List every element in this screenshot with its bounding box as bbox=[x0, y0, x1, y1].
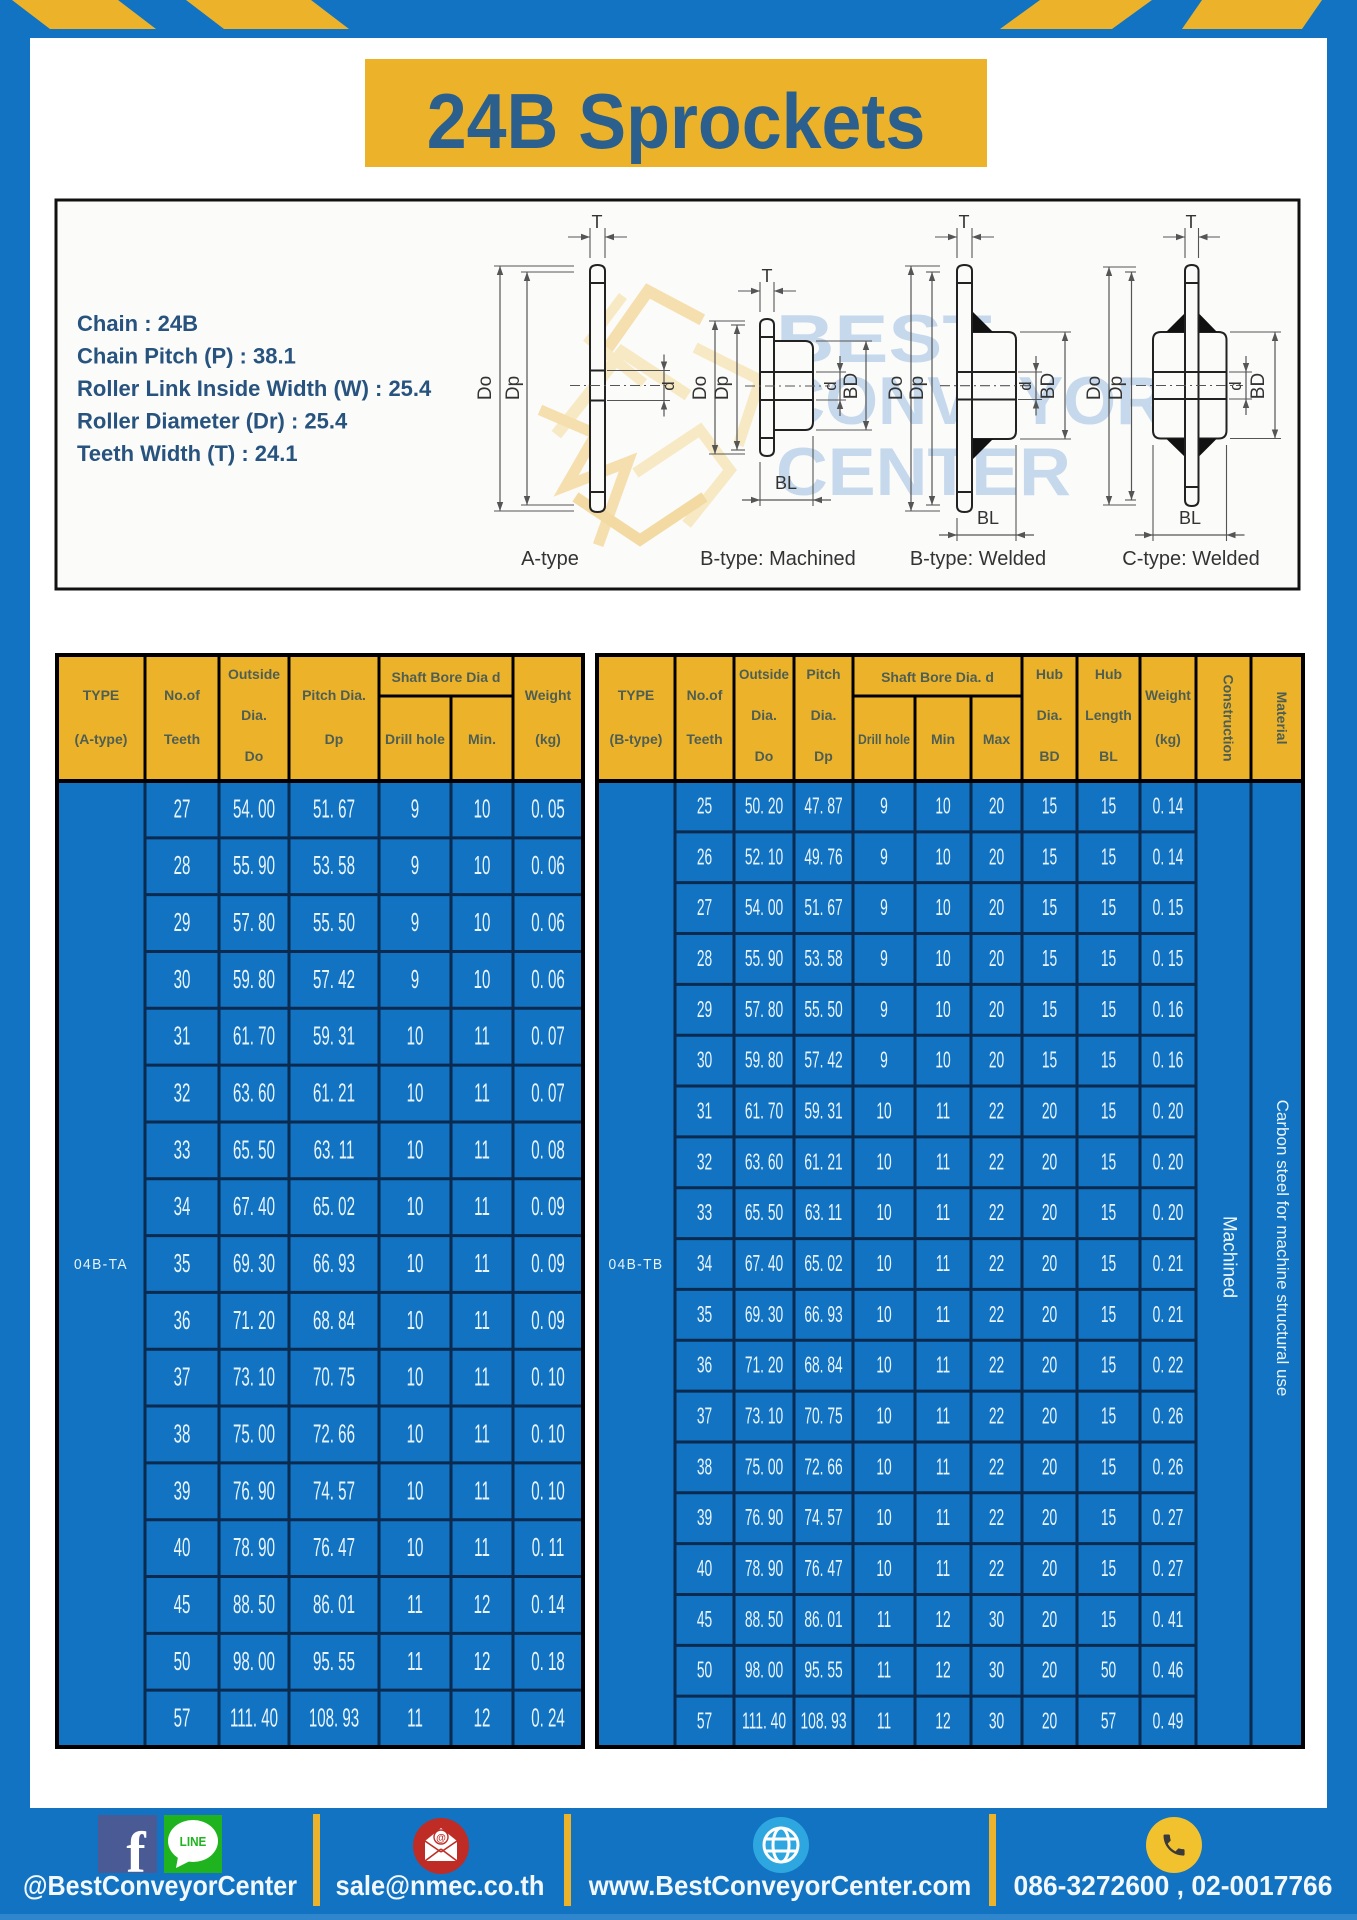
svg-text:20: 20 bbox=[989, 845, 1004, 870]
svg-text:50: 50 bbox=[174, 1647, 191, 1676]
svg-text:22: 22 bbox=[989, 1404, 1004, 1429]
svg-text:0. 26: 0. 26 bbox=[1153, 1404, 1184, 1429]
svg-text:0. 14: 0. 14 bbox=[531, 1590, 565, 1619]
svg-text:57. 80: 57. 80 bbox=[233, 908, 275, 937]
svg-text:Do: Do bbox=[886, 376, 907, 400]
svg-text:27: 27 bbox=[697, 896, 712, 921]
svg-text:12: 12 bbox=[935, 1709, 950, 1734]
svg-text:47. 87: 47. 87 bbox=[804, 794, 842, 819]
svg-text:31: 31 bbox=[174, 1021, 191, 1050]
svg-text:15: 15 bbox=[1042, 896, 1057, 921]
svg-text:59. 80: 59. 80 bbox=[745, 1048, 783, 1073]
svg-text:69. 30: 69. 30 bbox=[745, 1302, 783, 1327]
svg-text:69. 30: 69. 30 bbox=[233, 1249, 275, 1278]
svg-text:Chain : 24B: Chain : 24B bbox=[77, 311, 198, 336]
svg-text:20: 20 bbox=[1042, 1353, 1057, 1378]
svg-text:15: 15 bbox=[1101, 1455, 1116, 1480]
svg-text:15: 15 bbox=[1101, 1252, 1116, 1277]
svg-text:T: T bbox=[592, 212, 603, 232]
svg-text:9: 9 bbox=[880, 896, 888, 921]
svg-text:72. 66: 72. 66 bbox=[313, 1419, 355, 1448]
svg-text:10: 10 bbox=[407, 1249, 424, 1278]
svg-text:Pitch: Pitch bbox=[806, 666, 840, 682]
svg-text:0. 06: 0. 06 bbox=[531, 965, 565, 994]
svg-text:15: 15 bbox=[1101, 845, 1116, 870]
svg-text:10: 10 bbox=[876, 1099, 891, 1124]
svg-text:10: 10 bbox=[407, 1419, 424, 1448]
svg-text:22: 22 bbox=[989, 1201, 1004, 1226]
svg-text:57. 42: 57. 42 bbox=[313, 965, 355, 994]
svg-text:20: 20 bbox=[989, 794, 1004, 819]
svg-text:9: 9 bbox=[411, 908, 419, 937]
svg-text:d: d bbox=[821, 381, 840, 390]
svg-text:73. 10: 73. 10 bbox=[233, 1362, 275, 1391]
svg-text:Dia.: Dia. bbox=[1037, 707, 1063, 723]
svg-text:11: 11 bbox=[474, 1533, 490, 1562]
svg-text:36: 36 bbox=[697, 1353, 712, 1378]
svg-text:30: 30 bbox=[989, 1607, 1004, 1632]
svg-text:9: 9 bbox=[880, 947, 888, 972]
svg-text:10: 10 bbox=[407, 1078, 424, 1107]
svg-text:Teeth Width (T) : 24.1: Teeth Width (T) : 24.1 bbox=[77, 441, 298, 466]
svg-text:Teeth: Teeth bbox=[164, 731, 200, 747]
svg-text:Dp: Dp bbox=[503, 376, 524, 400]
svg-text:15: 15 bbox=[1042, 947, 1057, 972]
svg-text:111. 40: 111. 40 bbox=[742, 1709, 786, 1734]
svg-text:Machined: Machined bbox=[1219, 1216, 1240, 1298]
svg-text:9: 9 bbox=[880, 997, 888, 1022]
svg-text:11: 11 bbox=[936, 1302, 950, 1327]
svg-text:35: 35 bbox=[174, 1249, 191, 1278]
svg-text:30: 30 bbox=[989, 1658, 1004, 1683]
svg-text:39: 39 bbox=[174, 1476, 191, 1505]
svg-text:22: 22 bbox=[989, 1353, 1004, 1378]
svg-text:74. 57: 74. 57 bbox=[804, 1506, 842, 1531]
svg-text:61. 21: 61. 21 bbox=[804, 1150, 842, 1175]
svg-text:108. 93: 108. 93 bbox=[800, 1709, 846, 1734]
svg-text:Construction: Construction bbox=[1221, 674, 1237, 761]
svg-text:BL: BL bbox=[775, 473, 797, 493]
svg-text:20: 20 bbox=[989, 1048, 1004, 1073]
svg-text:0. 21: 0. 21 bbox=[1153, 1252, 1184, 1277]
svg-text:57: 57 bbox=[1101, 1709, 1116, 1734]
svg-text:www.BestConveyorCenter.com: www.BestConveyorCenter.com bbox=[588, 1870, 971, 1901]
svg-text:61. 21: 61. 21 bbox=[313, 1078, 355, 1107]
svg-text:24B Sprockets: 24B Sprockets bbox=[427, 77, 926, 164]
svg-text:04B-TA: 04B-TA bbox=[74, 1257, 128, 1274]
svg-text:0. 10: 0. 10 bbox=[531, 1419, 565, 1448]
svg-text:45: 45 bbox=[174, 1590, 191, 1619]
svg-text:50: 50 bbox=[1101, 1658, 1116, 1683]
svg-text:Do: Do bbox=[245, 748, 264, 764]
svg-text:33: 33 bbox=[697, 1201, 712, 1226]
svg-text:22: 22 bbox=[989, 1252, 1004, 1277]
svg-text:11: 11 bbox=[936, 1404, 950, 1429]
svg-text:55. 90: 55. 90 bbox=[233, 851, 275, 880]
svg-text:Do: Do bbox=[690, 376, 711, 400]
svg-text:98. 00: 98. 00 bbox=[233, 1647, 275, 1676]
svg-text:BL: BL bbox=[977, 508, 999, 528]
svg-text:0. 15: 0. 15 bbox=[1153, 896, 1184, 921]
svg-text:Outside: Outside bbox=[228, 666, 280, 682]
svg-text:65. 02: 65. 02 bbox=[804, 1252, 842, 1277]
svg-text:30: 30 bbox=[174, 965, 191, 994]
svg-text:86. 01: 86. 01 bbox=[313, 1590, 355, 1619]
svg-text:0. 20: 0. 20 bbox=[1153, 1099, 1184, 1124]
svg-text:15: 15 bbox=[1101, 1099, 1116, 1124]
svg-text:55. 90: 55. 90 bbox=[745, 947, 783, 972]
svg-text:Drill hole: Drill hole bbox=[858, 731, 910, 747]
svg-text:Shaft Bore Dia. d: Shaft Bore Dia. d bbox=[881, 669, 994, 685]
svg-text:15: 15 bbox=[1042, 1048, 1057, 1073]
svg-text:26: 26 bbox=[697, 845, 712, 870]
svg-text:68. 84: 68. 84 bbox=[804, 1353, 842, 1378]
svg-text:28: 28 bbox=[174, 851, 191, 880]
svg-text:15: 15 bbox=[1101, 1201, 1116, 1226]
svg-text:78. 90: 78. 90 bbox=[233, 1533, 275, 1562]
svg-text:35: 35 bbox=[697, 1302, 712, 1327]
svg-text:11: 11 bbox=[474, 1362, 490, 1391]
svg-text:0. 49: 0. 49 bbox=[1153, 1709, 1184, 1734]
svg-text:11: 11 bbox=[474, 1306, 490, 1335]
svg-text:BL: BL bbox=[1099, 748, 1118, 764]
svg-text:40: 40 bbox=[697, 1557, 712, 1582]
svg-text:65. 50: 65. 50 bbox=[233, 1135, 275, 1164]
svg-text:0. 24: 0. 24 bbox=[531, 1703, 565, 1732]
svg-text:34: 34 bbox=[697, 1252, 712, 1277]
svg-text:Carbon steel for machine struc: Carbon steel for machine structural use bbox=[1273, 1100, 1292, 1397]
svg-text:55. 50: 55. 50 bbox=[313, 908, 355, 937]
svg-text:0. 14: 0. 14 bbox=[1153, 794, 1184, 819]
svg-text:Chain Pitch (P) : 38.1: Chain Pitch (P) : 38.1 bbox=[77, 344, 296, 369]
svg-text:10: 10 bbox=[935, 997, 950, 1022]
svg-text:Min.: Min. bbox=[468, 731, 496, 747]
svg-text:10: 10 bbox=[876, 1557, 891, 1582]
svg-text:22: 22 bbox=[989, 1099, 1004, 1124]
svg-text:67. 40: 67. 40 bbox=[233, 1192, 275, 1221]
svg-text:15: 15 bbox=[1042, 997, 1057, 1022]
svg-text:20: 20 bbox=[1042, 1302, 1057, 1327]
svg-text:d: d bbox=[1016, 381, 1035, 390]
svg-text:37: 37 bbox=[697, 1404, 712, 1429]
svg-text:0. 09: 0. 09 bbox=[531, 1249, 565, 1278]
svg-text:Hub: Hub bbox=[1095, 666, 1122, 682]
svg-text:11: 11 bbox=[936, 1201, 950, 1226]
svg-text:49. 76: 49. 76 bbox=[804, 845, 842, 870]
svg-text:Dp: Dp bbox=[1106, 376, 1127, 400]
svg-text:0. 20: 0. 20 bbox=[1153, 1150, 1184, 1175]
svg-text:10: 10 bbox=[474, 851, 491, 880]
svg-text:98. 00: 98. 00 bbox=[745, 1658, 783, 1683]
svg-text:15: 15 bbox=[1101, 1557, 1116, 1582]
svg-text:BD: BD bbox=[1248, 373, 1269, 399]
svg-text:75. 00: 75. 00 bbox=[233, 1419, 275, 1448]
svg-text:15: 15 bbox=[1101, 1048, 1116, 1073]
svg-text:11: 11 bbox=[936, 1150, 950, 1175]
svg-text:30: 30 bbox=[989, 1709, 1004, 1734]
svg-text:22: 22 bbox=[989, 1302, 1004, 1327]
svg-text:25: 25 bbox=[697, 794, 712, 819]
svg-text:63. 60: 63. 60 bbox=[233, 1078, 275, 1107]
svg-text:57: 57 bbox=[174, 1703, 191, 1732]
svg-text:Dp: Dp bbox=[907, 376, 928, 400]
svg-text:20: 20 bbox=[1042, 1658, 1057, 1683]
svg-text:T: T bbox=[762, 266, 773, 286]
svg-text:61. 70: 61. 70 bbox=[233, 1021, 275, 1050]
svg-text:76. 90: 76. 90 bbox=[745, 1506, 783, 1531]
svg-text:70. 75: 70. 75 bbox=[804, 1404, 842, 1429]
svg-text:@BestConveyorCenter: @BestConveyorCenter bbox=[23, 1870, 297, 1902]
svg-text:No.of: No.of bbox=[687, 687, 723, 703]
svg-text:71. 20: 71. 20 bbox=[745, 1353, 783, 1378]
svg-text:0. 16: 0. 16 bbox=[1153, 1048, 1184, 1073]
svg-text:10: 10 bbox=[407, 1362, 424, 1391]
svg-text:20: 20 bbox=[1042, 1557, 1057, 1582]
svg-text:33: 33 bbox=[174, 1135, 191, 1164]
svg-text:54. 00: 54. 00 bbox=[233, 794, 275, 823]
svg-text:0. 26: 0. 26 bbox=[1153, 1455, 1184, 1480]
svg-text:Outside: Outside bbox=[739, 667, 789, 682]
svg-text:88. 50: 88. 50 bbox=[233, 1590, 275, 1619]
svg-text:20: 20 bbox=[1042, 1506, 1057, 1531]
svg-text:67. 40: 67. 40 bbox=[745, 1252, 783, 1277]
svg-text:50. 20: 50. 20 bbox=[745, 794, 783, 819]
svg-text:10: 10 bbox=[474, 965, 491, 994]
svg-text:10: 10 bbox=[935, 794, 950, 819]
svg-text:66. 93: 66. 93 bbox=[804, 1302, 842, 1327]
svg-text:LINE: LINE bbox=[180, 1834, 207, 1849]
svg-text:B-type: Welded: B-type: Welded bbox=[910, 548, 1046, 570]
svg-text:BL: BL bbox=[1179, 508, 1201, 528]
svg-text:63. 11: 63. 11 bbox=[314, 1135, 355, 1164]
svg-text:C-type: Welded: C-type: Welded bbox=[1122, 548, 1259, 570]
svg-text:Do: Do bbox=[755, 748, 774, 764]
svg-text:Min: Min bbox=[931, 731, 955, 747]
svg-text:76. 90: 76. 90 bbox=[233, 1476, 275, 1505]
svg-text:68. 84: 68. 84 bbox=[313, 1306, 355, 1335]
svg-text:0. 07: 0. 07 bbox=[531, 1078, 565, 1107]
svg-text:9: 9 bbox=[880, 794, 888, 819]
svg-text:Roller Link Inside Width (W): Roller Link Inside Width (W) : 25.4 bbox=[77, 376, 432, 401]
svg-text:No.of: No.of bbox=[164, 687, 200, 703]
svg-text:0. 21: 0. 21 bbox=[1153, 1302, 1184, 1327]
svg-text:BD: BD bbox=[1038, 373, 1059, 399]
svg-text:76. 47: 76. 47 bbox=[804, 1557, 842, 1582]
svg-text:76. 47: 76. 47 bbox=[313, 1533, 355, 1562]
svg-text:15: 15 bbox=[1101, 1150, 1116, 1175]
svg-text:10: 10 bbox=[474, 908, 491, 937]
svg-text:51. 67: 51. 67 bbox=[804, 896, 842, 921]
svg-text:22: 22 bbox=[989, 1506, 1004, 1531]
svg-text:11: 11 bbox=[474, 1476, 490, 1505]
svg-text:74. 57: 74. 57 bbox=[313, 1476, 355, 1505]
svg-text:sale@nmec.co.th: sale@nmec.co.th bbox=[336, 1870, 545, 1901]
svg-text:32: 32 bbox=[697, 1150, 712, 1175]
svg-text:15: 15 bbox=[1042, 845, 1057, 870]
svg-text:11: 11 bbox=[474, 1419, 490, 1448]
svg-text:11: 11 bbox=[877, 1709, 891, 1734]
svg-text:11: 11 bbox=[474, 1021, 490, 1050]
svg-text:0. 09: 0. 09 bbox=[531, 1306, 565, 1335]
svg-text:34: 34 bbox=[174, 1192, 191, 1221]
svg-text:9: 9 bbox=[411, 851, 419, 880]
svg-text:10: 10 bbox=[407, 1135, 424, 1164]
svg-text:12: 12 bbox=[935, 1658, 950, 1683]
svg-text:Teeth: Teeth bbox=[686, 731, 722, 747]
svg-text:15: 15 bbox=[1101, 1404, 1116, 1429]
svg-text:0. 06: 0. 06 bbox=[531, 908, 565, 937]
svg-text:10: 10 bbox=[876, 1201, 891, 1226]
svg-text:9: 9 bbox=[880, 845, 888, 870]
svg-text:12: 12 bbox=[474, 1590, 491, 1619]
svg-text:Dp: Dp bbox=[712, 376, 733, 400]
svg-text:55. 50: 55. 50 bbox=[804, 997, 842, 1022]
svg-text:29: 29 bbox=[174, 908, 191, 937]
svg-text:10: 10 bbox=[407, 1021, 424, 1050]
svg-text:10: 10 bbox=[876, 1302, 891, 1327]
svg-text:Dia.: Dia. bbox=[811, 707, 837, 723]
svg-text:11: 11 bbox=[474, 1249, 490, 1278]
svg-text:39: 39 bbox=[697, 1506, 712, 1531]
svg-text:T: T bbox=[959, 212, 970, 232]
svg-text:22: 22 bbox=[989, 1455, 1004, 1480]
svg-text:15: 15 bbox=[1101, 1506, 1116, 1531]
svg-text:63. 60: 63. 60 bbox=[745, 1150, 783, 1175]
svg-text:38: 38 bbox=[697, 1455, 712, 1480]
svg-text:Pitch Dia.: Pitch Dia. bbox=[302, 687, 366, 703]
svg-text:9: 9 bbox=[411, 965, 419, 994]
svg-text:22: 22 bbox=[989, 1557, 1004, 1582]
svg-text:59. 31: 59. 31 bbox=[313, 1021, 355, 1050]
svg-text:Dp: Dp bbox=[814, 748, 833, 764]
svg-text:36: 36 bbox=[174, 1306, 191, 1335]
svg-text:65. 50: 65. 50 bbox=[745, 1201, 783, 1226]
svg-text:10: 10 bbox=[407, 1533, 424, 1562]
svg-text:10: 10 bbox=[876, 1150, 891, 1175]
svg-text:40: 40 bbox=[174, 1533, 191, 1562]
svg-text:31: 31 bbox=[697, 1099, 712, 1124]
svg-text:Dia.: Dia. bbox=[751, 707, 777, 723]
svg-text:11: 11 bbox=[877, 1607, 891, 1632]
svg-text:BD: BD bbox=[841, 373, 862, 399]
svg-text:29: 29 bbox=[697, 997, 712, 1022]
svg-text:61. 70: 61. 70 bbox=[745, 1099, 783, 1124]
svg-text:10: 10 bbox=[876, 1455, 891, 1480]
svg-text:Do: Do bbox=[475, 376, 496, 400]
svg-text:15: 15 bbox=[1101, 997, 1116, 1022]
svg-text:BD: BD bbox=[1039, 748, 1059, 764]
svg-text:20: 20 bbox=[1042, 1252, 1057, 1277]
svg-text:11: 11 bbox=[936, 1506, 950, 1531]
svg-text:Weight: Weight bbox=[1145, 687, 1191, 703]
svg-text:53. 58: 53. 58 bbox=[313, 851, 355, 880]
svg-text:86. 01: 86. 01 bbox=[804, 1607, 842, 1632]
svg-text:72. 66: 72. 66 bbox=[804, 1455, 842, 1480]
svg-text:0. 27: 0. 27 bbox=[1153, 1506, 1184, 1531]
svg-text:15: 15 bbox=[1101, 947, 1116, 972]
svg-text:51. 67: 51. 67 bbox=[313, 794, 355, 823]
svg-text:0. 11: 0. 11 bbox=[532, 1533, 564, 1562]
svg-text:88. 50: 88. 50 bbox=[745, 1607, 783, 1632]
svg-text:71. 20: 71. 20 bbox=[233, 1306, 275, 1335]
svg-text:11: 11 bbox=[474, 1135, 490, 1164]
svg-text:15: 15 bbox=[1101, 896, 1116, 921]
svg-text:10: 10 bbox=[876, 1252, 891, 1277]
svg-text:20: 20 bbox=[1042, 1201, 1057, 1226]
svg-text:11: 11 bbox=[936, 1353, 950, 1378]
svg-text:T: T bbox=[1186, 212, 1197, 232]
svg-text:0. 46: 0. 46 bbox=[1153, 1658, 1184, 1683]
svg-text:15: 15 bbox=[1101, 1353, 1116, 1378]
svg-text:11: 11 bbox=[936, 1099, 950, 1124]
svg-text:53. 58: 53. 58 bbox=[804, 947, 842, 972]
svg-text:50: 50 bbox=[697, 1658, 712, 1683]
svg-text:32: 32 bbox=[174, 1078, 191, 1107]
svg-text:78. 90: 78. 90 bbox=[745, 1557, 783, 1582]
svg-text:10: 10 bbox=[935, 1048, 950, 1073]
svg-text:9: 9 bbox=[880, 1048, 888, 1073]
svg-text:0. 09: 0. 09 bbox=[531, 1192, 565, 1221]
svg-text:38: 38 bbox=[174, 1419, 191, 1448]
svg-text:11: 11 bbox=[474, 1078, 490, 1107]
svg-text:20: 20 bbox=[1042, 1099, 1057, 1124]
svg-text:73. 10: 73. 10 bbox=[745, 1404, 783, 1429]
svg-text:57. 42: 57. 42 bbox=[804, 1048, 842, 1073]
svg-text:59. 31: 59. 31 bbox=[804, 1099, 842, 1124]
svg-text:54. 00: 54. 00 bbox=[745, 896, 783, 921]
svg-text:11: 11 bbox=[936, 1557, 950, 1582]
svg-text:57. 80: 57. 80 bbox=[745, 997, 783, 1022]
svg-text:A-type: A-type bbox=[521, 548, 579, 570]
svg-text:TYPE: TYPE bbox=[83, 687, 120, 703]
svg-text:(A-type): (A-type) bbox=[75, 731, 128, 747]
svg-text:11: 11 bbox=[407, 1703, 423, 1732]
svg-text:10: 10 bbox=[407, 1192, 424, 1221]
svg-text:95. 55: 95. 55 bbox=[313, 1647, 355, 1676]
svg-text:10: 10 bbox=[935, 896, 950, 921]
svg-text:10: 10 bbox=[935, 845, 950, 870]
svg-text:Material: Material bbox=[1274, 692, 1290, 745]
svg-text:20: 20 bbox=[989, 997, 1004, 1022]
svg-text:10: 10 bbox=[407, 1306, 424, 1335]
svg-text:Dp: Dp bbox=[325, 731, 344, 747]
svg-text:10: 10 bbox=[876, 1506, 891, 1531]
svg-text:10: 10 bbox=[876, 1353, 891, 1378]
svg-text:0. 18: 0. 18 bbox=[531, 1647, 565, 1676]
svg-text:95. 55: 95. 55 bbox=[804, 1658, 842, 1683]
svg-text:12: 12 bbox=[474, 1647, 491, 1676]
svg-text:11: 11 bbox=[407, 1590, 423, 1619]
svg-text:15: 15 bbox=[1101, 794, 1116, 819]
svg-text:Drill hole: Drill hole bbox=[385, 731, 445, 747]
svg-text:0. 15: 0. 15 bbox=[1153, 947, 1184, 972]
svg-text:0. 16: 0. 16 bbox=[1153, 997, 1184, 1022]
svg-text:45: 45 bbox=[697, 1607, 712, 1632]
svg-text:11: 11 bbox=[407, 1647, 423, 1676]
svg-text:63. 11: 63. 11 bbox=[805, 1201, 842, 1226]
svg-text:11: 11 bbox=[936, 1455, 950, 1480]
svg-text:65. 02: 65. 02 bbox=[313, 1192, 355, 1221]
svg-text:(kg): (kg) bbox=[535, 731, 561, 747]
svg-text:12: 12 bbox=[474, 1703, 491, 1732]
svg-text:20: 20 bbox=[1042, 1607, 1057, 1632]
svg-text:0. 20: 0. 20 bbox=[1153, 1201, 1184, 1226]
svg-text:04B-TB: 04B-TB bbox=[608, 1257, 663, 1274]
svg-text:11: 11 bbox=[936, 1252, 950, 1277]
svg-text:70. 75: 70. 75 bbox=[313, 1362, 355, 1391]
svg-text:75. 00: 75. 00 bbox=[745, 1455, 783, 1480]
svg-text:20: 20 bbox=[989, 947, 1004, 972]
